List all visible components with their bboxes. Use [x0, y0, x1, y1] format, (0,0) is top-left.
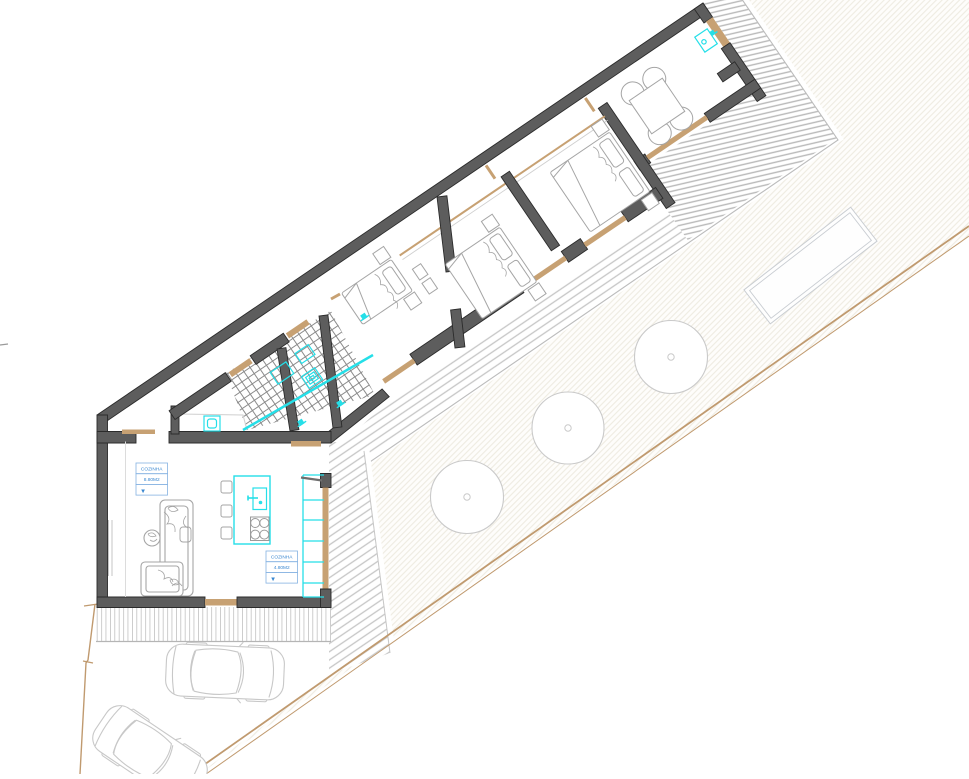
svg-text:▼: ▼ [270, 576, 276, 583]
svg-text:8.80M2: 8.80M2 [144, 477, 160, 483]
svg-text:COZINHA: COZINHA [141, 466, 163, 472]
svg-text:COZINHA: COZINHA [271, 554, 293, 560]
svg-text:4.80M2: 4.80M2 [274, 565, 290, 571]
svg-text:▼: ▼ [140, 488, 146, 495]
